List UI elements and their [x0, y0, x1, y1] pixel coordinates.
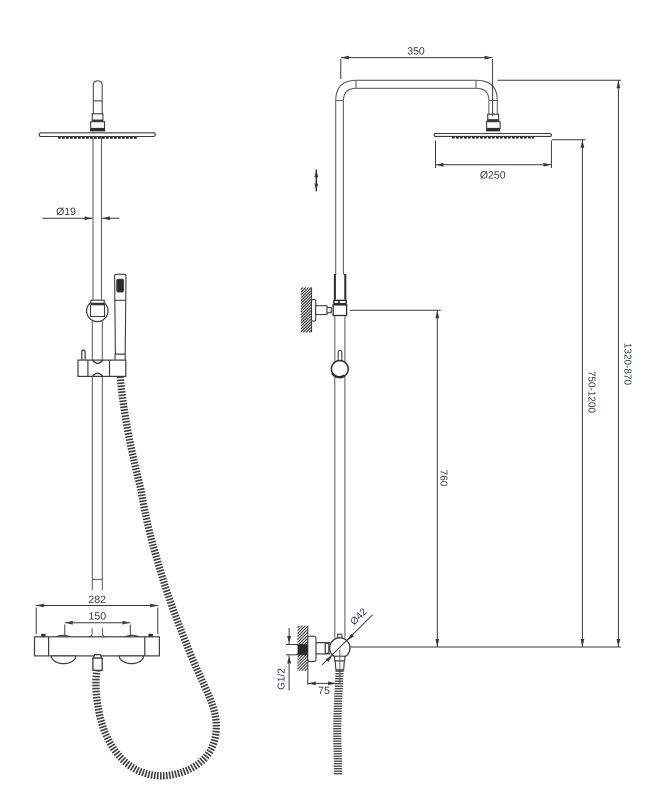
svg-text:282: 282	[88, 594, 106, 606]
svg-text:Ø250: Ø250	[480, 170, 506, 182]
svg-text:G1/2: G1/2	[277, 668, 288, 690]
svg-text:Ø19: Ø19	[56, 206, 76, 218]
svg-text:150: 150	[89, 611, 107, 623]
svg-text:75: 75	[318, 685, 330, 697]
svg-text:760: 760	[438, 470, 449, 487]
svg-text:350: 350	[407, 46, 425, 58]
svg-text:750-1200: 750-1200	[586, 371, 597, 414]
svg-text:1320-870: 1320-870	[622, 343, 633, 386]
